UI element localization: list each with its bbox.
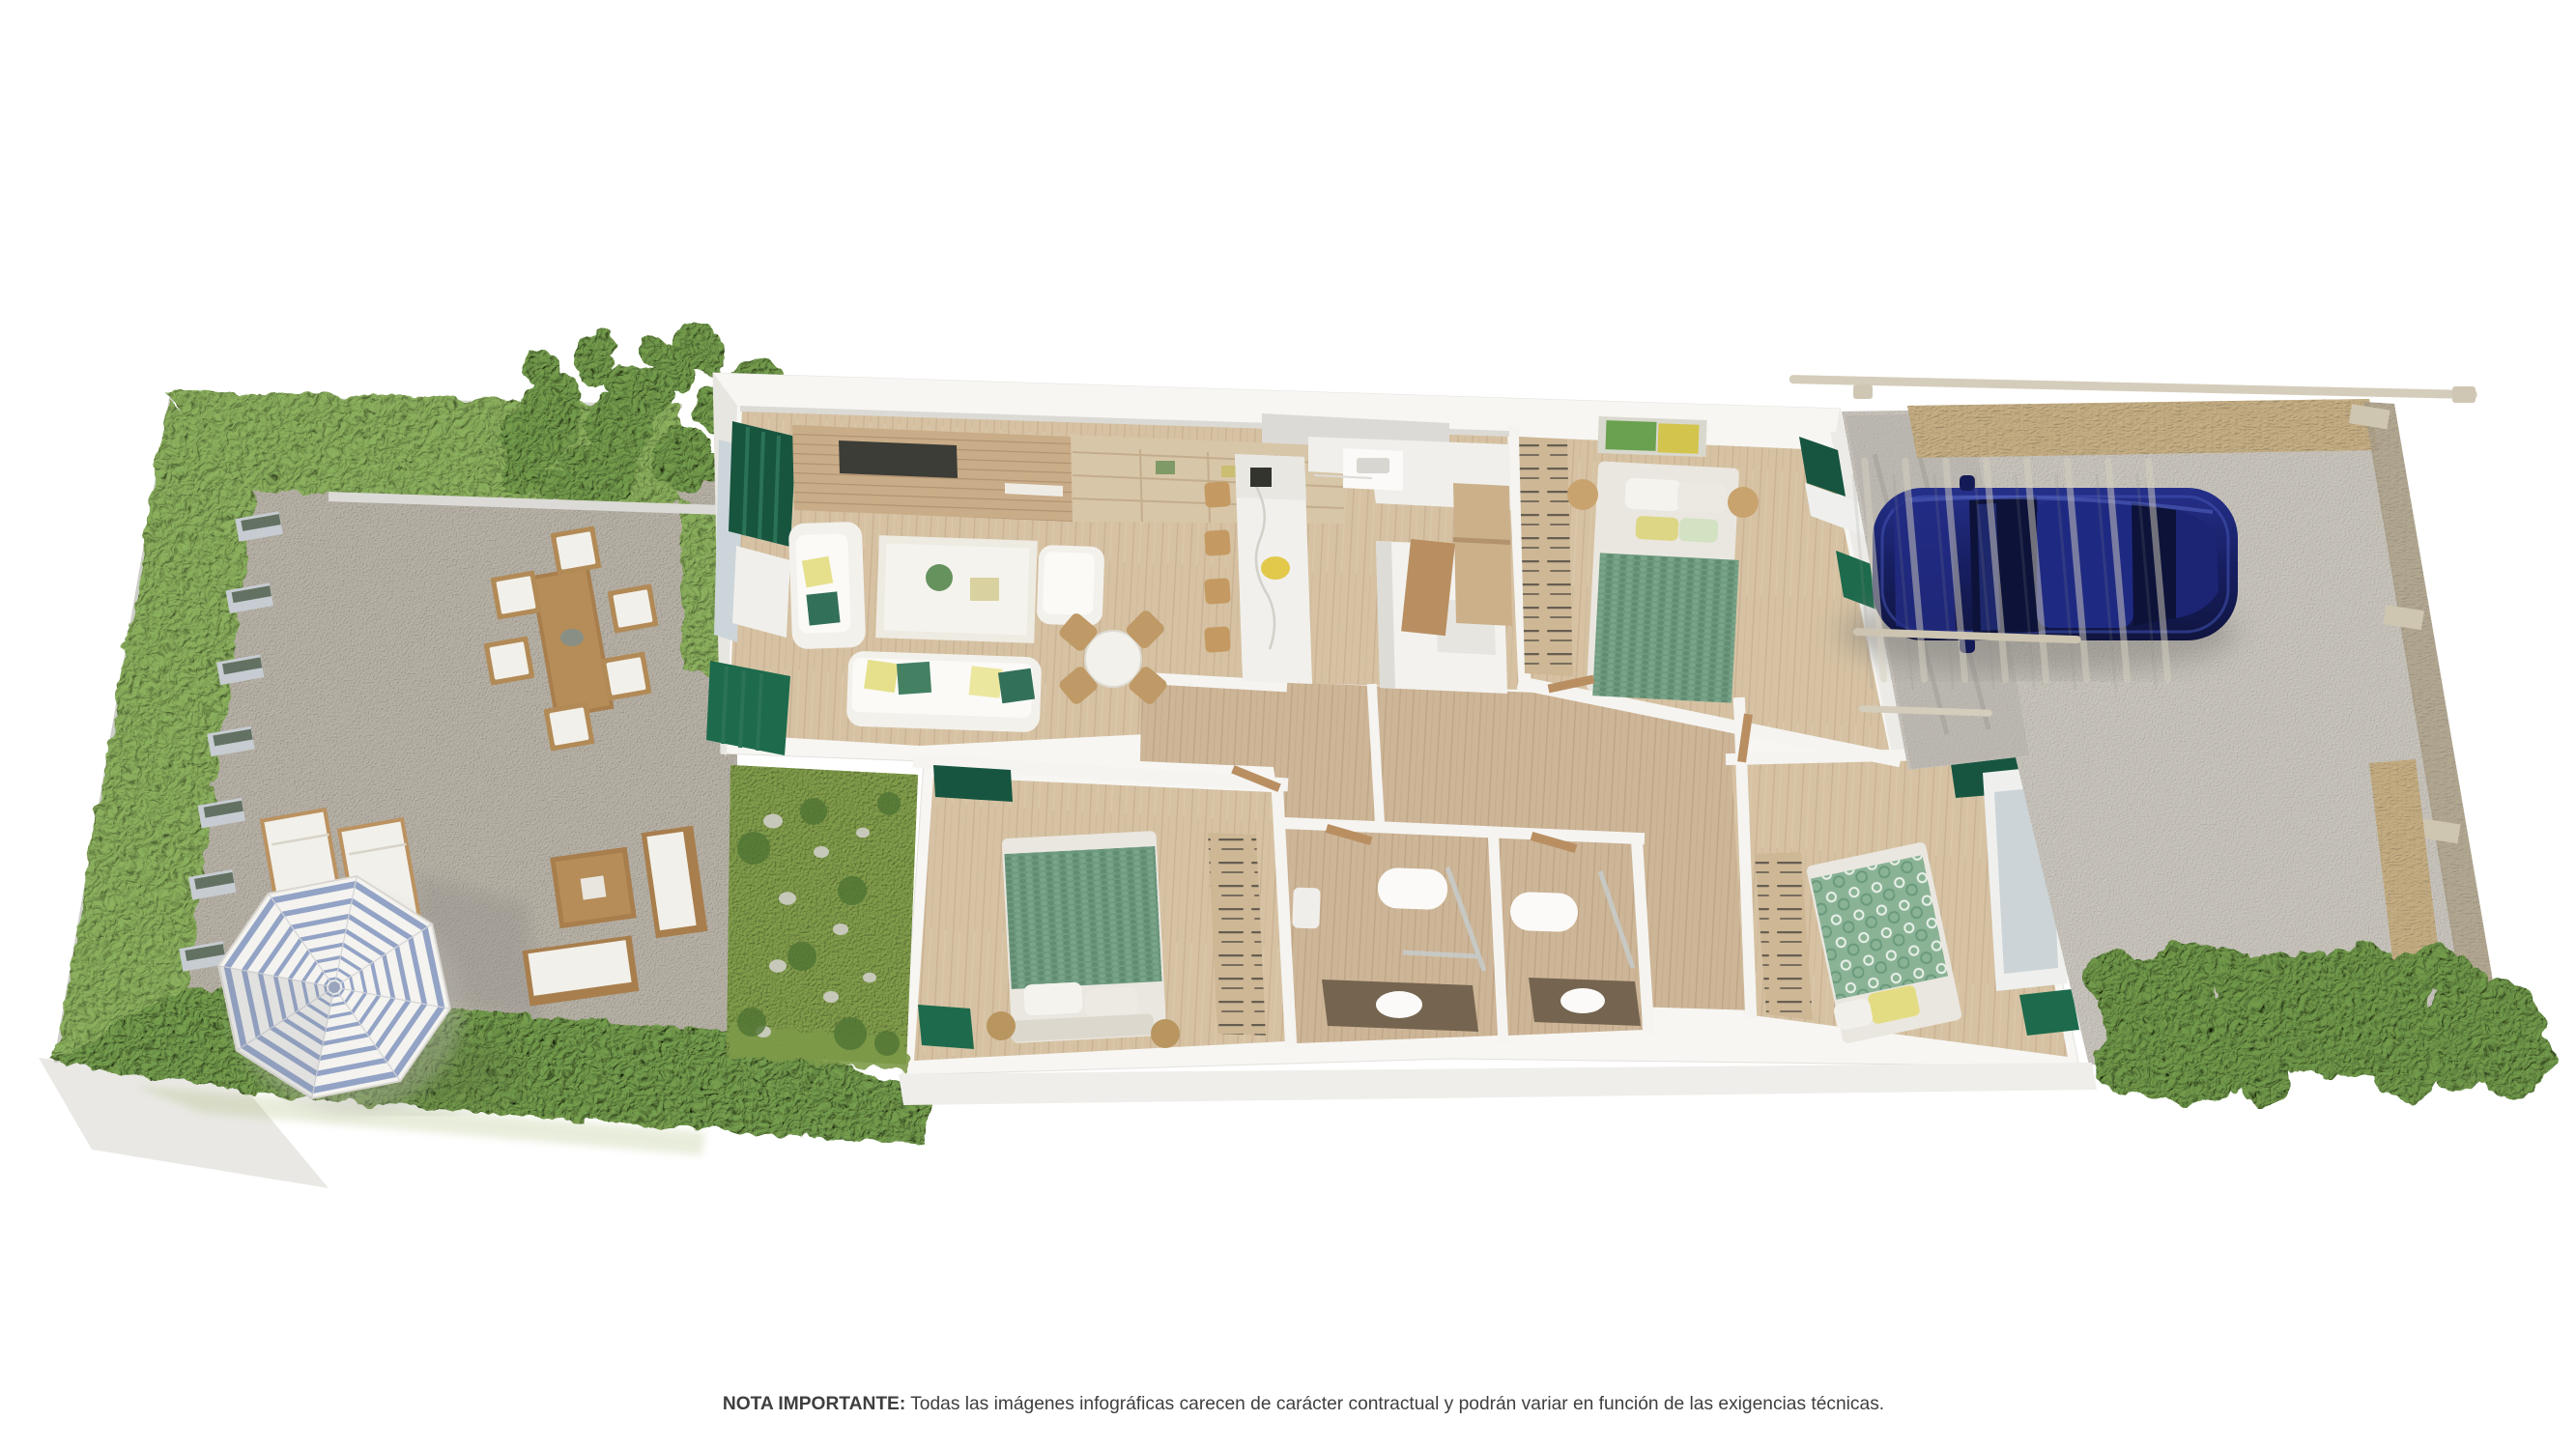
- svg-text:NOTA IMPORTANTE: Todas las imá: NOTA IMPORTANTE: Todas las imágenes info…: [723, 1394, 1884, 1414]
